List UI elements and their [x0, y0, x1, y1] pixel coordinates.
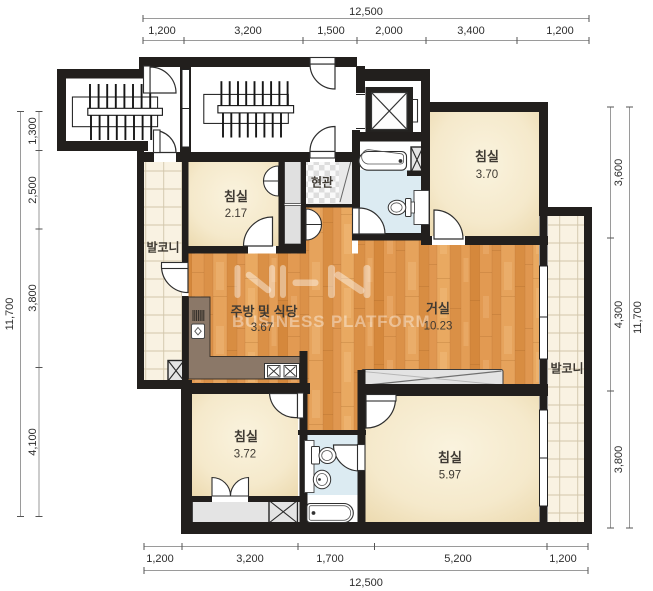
svg-text:침실: 침실	[438, 450, 462, 465]
svg-text:3.67: 3.67	[251, 322, 273, 334]
svg-text:1,200: 1,200	[546, 25, 574, 37]
svg-text:4,100: 4,100	[27, 428, 39, 456]
svg-text:1,700: 1,700	[316, 553, 344, 565]
svg-text:1,500: 1,500	[317, 25, 345, 37]
svg-text:11,700: 11,700	[4, 298, 16, 331]
svg-text:12,500: 12,500	[349, 6, 383, 18]
svg-text:2.17: 2.17	[225, 208, 247, 220]
svg-text:거실: 거실	[426, 301, 450, 316]
svg-text:12,500: 12,500	[349, 577, 383, 589]
svg-text:1,300: 1,300	[27, 117, 39, 145]
svg-text:3.70: 3.70	[476, 169, 498, 181]
svg-text:침실: 침실	[224, 189, 248, 204]
svg-text:1,200: 1,200	[148, 25, 176, 37]
svg-text:5.97: 5.97	[439, 470, 461, 482]
svg-text:3,200: 3,200	[234, 25, 262, 37]
svg-text:2,500: 2,500	[27, 176, 39, 204]
svg-text:2,000: 2,000	[375, 25, 403, 37]
svg-text:4,300: 4,300	[613, 301, 625, 329]
svg-text:3,600: 3,600	[613, 159, 625, 187]
svg-text:1,200: 1,200	[549, 553, 577, 565]
svg-text:1,200: 1,200	[146, 553, 174, 565]
svg-text:11,700: 11,700	[632, 301, 644, 334]
svg-text:3,200: 3,200	[236, 553, 264, 565]
svg-text:5,200: 5,200	[444, 553, 472, 565]
svg-text:3,800: 3,800	[27, 284, 39, 312]
svg-text:침실: 침실	[475, 149, 499, 164]
svg-text:3,800: 3,800	[613, 446, 625, 474]
svg-text:발코니: 발코니	[550, 361, 583, 376]
svg-text:발코니: 발코니	[146, 240, 179, 255]
svg-text:주방 및 식당: 주방 및 식당	[230, 304, 297, 319]
svg-text:현관: 현관	[311, 175, 333, 190]
svg-text:3.72: 3.72	[234, 449, 256, 461]
svg-text:3,400: 3,400	[457, 25, 485, 37]
svg-text:10.23: 10.23	[424, 321, 453, 333]
svg-text:침실: 침실	[234, 429, 258, 444]
